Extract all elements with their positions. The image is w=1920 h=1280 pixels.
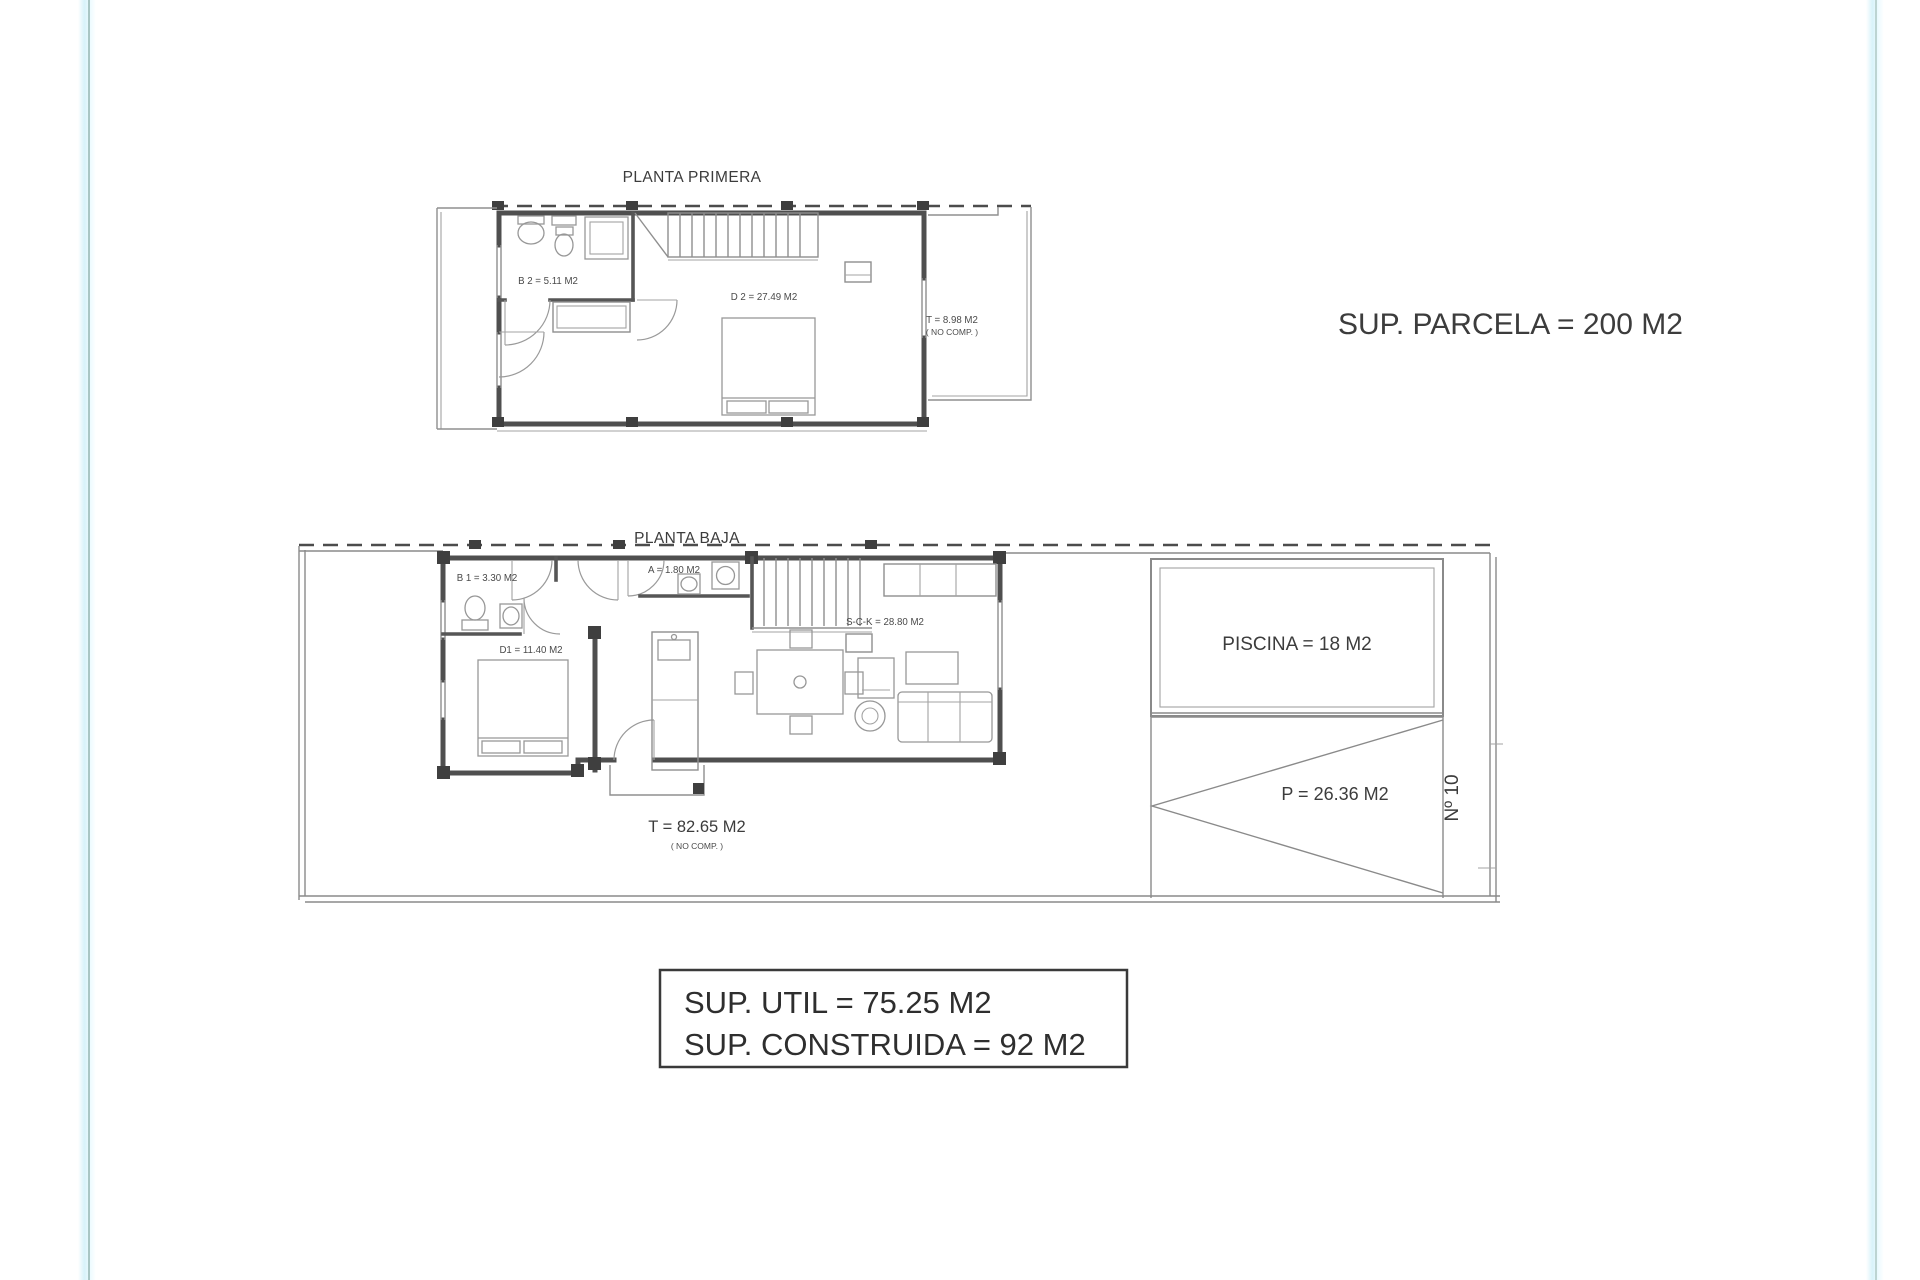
parcel-boundary bbox=[299, 540, 1503, 902]
room-label-d2: D 2 = 27.49 M2 bbox=[731, 292, 798, 303]
summary-built-label: SUP. CONSTRUIDA = 92 M2 bbox=[684, 1027, 1086, 1062]
first-floor-stairs-symbol bbox=[635, 213, 871, 282]
parking-label: P = 26.36 M2 bbox=[1281, 784, 1388, 804]
ground-floor-kitchen bbox=[588, 626, 698, 770]
room-label-b1: B 1 = 3.30 M2 bbox=[457, 573, 518, 584]
first-floor-bed-symbol bbox=[722, 318, 815, 415]
summary-util-label: SUP. UTIL = 75.25 M2 bbox=[684, 985, 992, 1020]
terrace-note-ground: ( NO COMP. ) bbox=[671, 841, 723, 851]
terrace-label-first: T = 8.98 M2 bbox=[926, 315, 978, 326]
ground-floor-walls bbox=[437, 551, 1006, 795]
first-floor-side-terrace-outline bbox=[437, 208, 927, 431]
terrace-label-ground: T = 82.65 M2 bbox=[648, 818, 745, 836]
first-floor-partitions bbox=[499, 213, 677, 377]
ground-floor-bathroom bbox=[443, 558, 560, 634]
terrace-note-first: ( NO COMP. ) bbox=[926, 327, 978, 337]
first-floor-plan: PLANTA PRIMERA bbox=[437, 169, 1031, 431]
room-label-a: A = 1.80 M2 bbox=[648, 565, 700, 576]
parking-outline bbox=[1151, 559, 1443, 898]
room-label-d1: D1 = 11.40 M2 bbox=[499, 645, 562, 656]
plan-title-first: PLANTA PRIMERA bbox=[623, 169, 762, 186]
room-label-b2: B 2 = 5.11 M2 bbox=[518, 276, 578, 287]
ground-floor-door-arcs bbox=[512, 560, 664, 600]
first-floor-terrace-outline bbox=[928, 207, 1031, 400]
first-floor-bathroom-fixtures bbox=[518, 216, 628, 259]
room-label-sck: S-C-K = 28.80 M2 bbox=[846, 617, 924, 628]
ground-floor-plan: PLANTA BAJA bbox=[299, 530, 1503, 902]
summary-box: SUP. UTIL = 75.25 M2 SUP. CONSTRUIDA = 9… bbox=[660, 970, 1127, 1067]
ground-floor-bed-symbol bbox=[478, 660, 568, 756]
ground-floor-living-furniture bbox=[735, 630, 992, 742]
ground-floor-closet bbox=[884, 564, 996, 596]
floor-plan-svg: PLANTA PRIMERA bbox=[0, 0, 1920, 1280]
street-number-label: Nº 10 bbox=[1442, 774, 1463, 821]
blueprint-page: PLANTA PRIMERA bbox=[0, 0, 1920, 1280]
parcel-area-label: SUP. PARCELA = 200 M2 bbox=[1338, 308, 1683, 341]
pool-label: PISCINA = 18 M2 bbox=[1222, 634, 1371, 655]
